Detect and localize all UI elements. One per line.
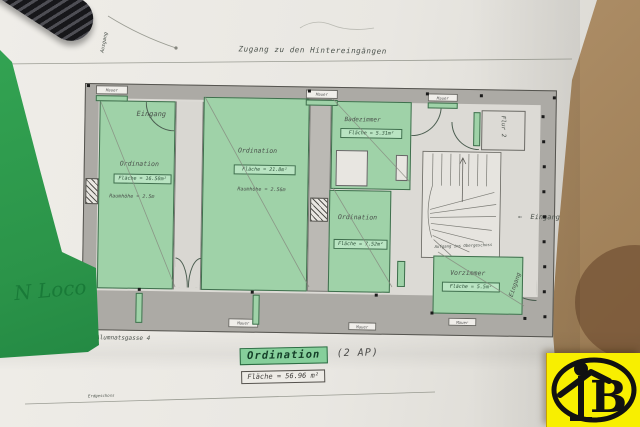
caption-block: Ordination (2 AP) Fläche = 56.96 m² bbox=[239, 341, 450, 395]
logo-graphic: B bbox=[547, 353, 640, 427]
caption-suffix: (2 AP) bbox=[337, 347, 379, 359]
floor-note: Erdgeschoss bbox=[88, 393, 115, 399]
caption-total-area: Fläche = 56.96 m² bbox=[241, 369, 325, 384]
caption-room-name: Ordination bbox=[240, 346, 328, 365]
photo-floor-plan-scene: Zugang zu den Hintereingängen Ausgang Ei… bbox=[0, 0, 640, 427]
logo-letter: B bbox=[590, 372, 627, 423]
company-logo: B bbox=[546, 353, 640, 427]
